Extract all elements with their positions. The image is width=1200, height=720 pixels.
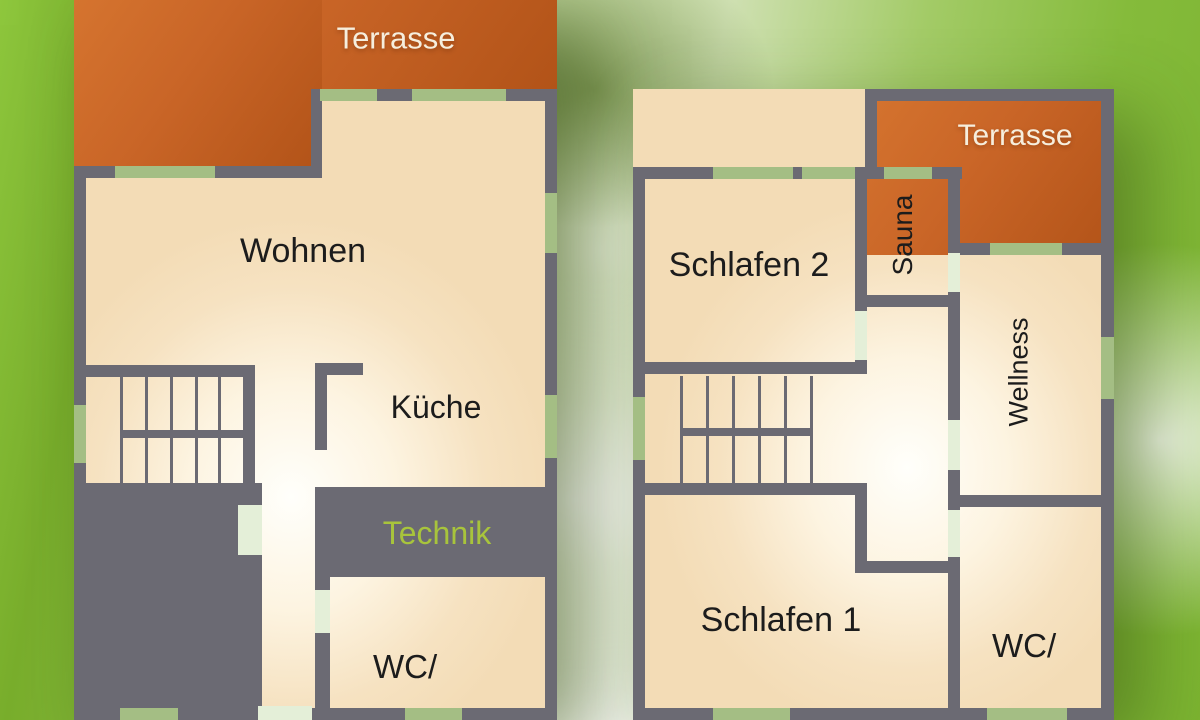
wall-segment bbox=[867, 561, 960, 573]
door-marker bbox=[238, 505, 262, 555]
room-label-wc-dusche-ground: WC/ Dusche bbox=[373, 598, 485, 720]
stair-tread bbox=[732, 376, 735, 428]
stair-tread bbox=[784, 376, 787, 428]
room-label-wc-dusche-upper: WC/ Dusche bbox=[992, 577, 1104, 720]
stair-tread bbox=[784, 436, 787, 483]
door-marker bbox=[258, 706, 312, 720]
stair-tread bbox=[170, 377, 173, 430]
wall-segment bbox=[855, 483, 867, 573]
door-marker bbox=[948, 510, 960, 557]
wall-segment bbox=[865, 89, 877, 179]
window-marker bbox=[633, 397, 645, 460]
stair-tread bbox=[758, 436, 761, 483]
wall-segment bbox=[311, 89, 322, 178]
window-marker bbox=[412, 89, 506, 101]
room-label-schlafen2: Schlafen 2 bbox=[669, 248, 830, 282]
window-marker bbox=[713, 167, 793, 179]
wall-segment bbox=[855, 295, 960, 307]
wall-segment bbox=[633, 362, 867, 374]
stair-tread bbox=[145, 377, 148, 430]
stair-tread bbox=[218, 377, 221, 430]
stair-tread bbox=[120, 438, 123, 483]
wall-segment bbox=[865, 89, 1114, 101]
window-marker bbox=[545, 193, 557, 253]
wall-segment bbox=[243, 365, 255, 483]
room-label-terrasse-ground: Terrasse bbox=[337, 23, 456, 54]
utility-block bbox=[74, 483, 262, 720]
wall-segment bbox=[633, 483, 867, 495]
terrace-area bbox=[74, 0, 322, 166]
stair-tread bbox=[810, 376, 813, 428]
room-label-wellness: Wellness bbox=[1006, 317, 1033, 426]
window-marker bbox=[802, 167, 855, 179]
stair-rail bbox=[120, 430, 255, 438]
stair-tread bbox=[680, 436, 683, 483]
wall-segment bbox=[86, 365, 255, 377]
stair-tread bbox=[680, 376, 683, 428]
window-marker bbox=[545, 395, 557, 458]
stair-tread bbox=[145, 438, 148, 483]
stair-tread bbox=[706, 376, 709, 428]
room-label-terrasse-upper: Terrasse bbox=[957, 121, 1072, 151]
window-marker bbox=[115, 166, 215, 178]
stair-rail bbox=[680, 428, 813, 436]
wall-segment bbox=[948, 495, 1114, 507]
window-marker bbox=[884, 167, 932, 179]
room-label-wohnen: Wohnen bbox=[240, 234, 366, 268]
door-marker bbox=[948, 420, 960, 470]
wc-line1: WC/ bbox=[992, 627, 1056, 664]
door-marker bbox=[855, 311, 867, 360]
stair-tread bbox=[706, 436, 709, 483]
stair-tread bbox=[195, 438, 198, 483]
stair-tread bbox=[758, 376, 761, 428]
wall-segment bbox=[315, 363, 327, 450]
stair-tread bbox=[170, 438, 173, 483]
window-marker bbox=[320, 89, 377, 101]
stair-tread bbox=[732, 436, 735, 483]
floorplan: Terrasse Wohnen Küche Technik WC/ Dusche bbox=[0, 0, 1200, 720]
wc-line1: WC/ bbox=[373, 648, 437, 685]
window-marker bbox=[74, 405, 86, 463]
room-label-kueche: Küche bbox=[391, 391, 482, 423]
door-marker bbox=[948, 253, 960, 292]
room-label-sauna: Sauna bbox=[889, 195, 917, 276]
room-label-technik: Technik bbox=[383, 517, 492, 549]
window-marker bbox=[990, 243, 1062, 255]
window-marker bbox=[713, 708, 790, 720]
window-marker bbox=[1101, 337, 1114, 399]
stair-tread bbox=[218, 438, 221, 483]
stair-tread bbox=[120, 377, 123, 430]
door-marker bbox=[315, 590, 330, 633]
stair-tread bbox=[195, 377, 198, 430]
window-marker bbox=[120, 708, 178, 720]
stair-tread bbox=[810, 436, 813, 483]
room-label-schlafen1: Schlafen 1 bbox=[701, 603, 862, 637]
